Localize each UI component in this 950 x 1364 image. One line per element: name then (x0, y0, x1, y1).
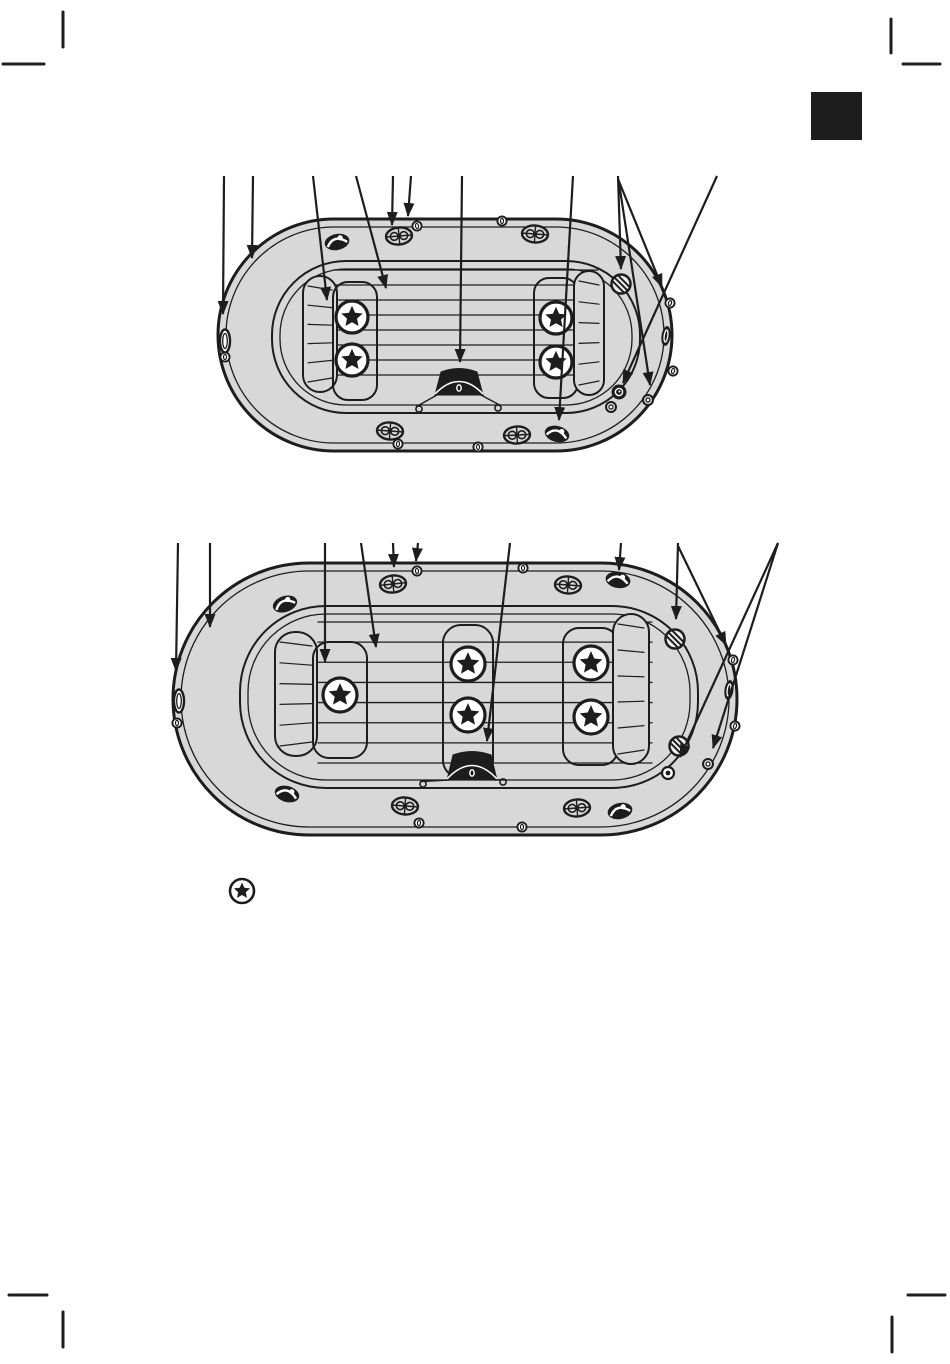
bench-outline (574, 271, 604, 395)
inflatable-bench (303, 276, 337, 392)
air-valve-icon (612, 385, 627, 400)
screw-hatch-icon (612, 275, 631, 294)
boat-diagram-two-bench (218, 176, 717, 452)
grommet-ring (220, 352, 229, 361)
inflatable-bench (574, 271, 604, 395)
ring-hole (609, 405, 613, 409)
rope-ring-icon (643, 395, 653, 405)
footnote-star-icon (230, 879, 254, 903)
rope-grommet-icon (412, 221, 423, 232)
callout-arrow (223, 176, 224, 314)
grommet-ring (518, 563, 527, 572)
drain-plug-icon (662, 767, 674, 779)
oar-lock-icon (554, 576, 581, 595)
callout-arrow (408, 176, 411, 216)
rope-grommet-icon (517, 822, 526, 831)
drain-ring-plug (666, 771, 671, 776)
oar-lock-slot (517, 427, 518, 443)
star-valve-marker (323, 678, 357, 712)
star-valve-marker (451, 698, 485, 732)
callout-arrow (252, 176, 253, 258)
oar-lock-icon (385, 226, 412, 245)
star-valve-marker (574, 646, 608, 680)
grommet-ring (517, 822, 526, 831)
screw-hatch-icon (666, 630, 685, 649)
grommet-ring (412, 566, 422, 576)
chapter-tab-marker (811, 92, 862, 140)
oar-lock-icon (521, 225, 548, 244)
star-valve-marker (336, 344, 368, 376)
rope-grommet-icon (172, 718, 181, 727)
bench-outline (303, 276, 337, 392)
rope-grommet-icon (497, 216, 506, 225)
bench-hatch-line (308, 324, 332, 325)
ring-hole (706, 762, 710, 766)
inflatable-bench (275, 632, 317, 756)
valve-dot (619, 391, 621, 393)
bench-hatch-line (579, 323, 599, 324)
rope-grommet-icon (414, 818, 424, 828)
bow-rope-cap-icon (174, 690, 184, 713)
rope-grommet-icon (393, 439, 403, 449)
star-valve-marker (336, 301, 368, 333)
star-valve-marker (451, 647, 485, 681)
oar-lock-icon (376, 422, 403, 441)
bench-hatch-line (579, 343, 599, 344)
oar-lock-icon (504, 426, 531, 444)
star-valve-marker (574, 700, 608, 734)
bench-hatch-line (618, 676, 644, 677)
bow-rope-cap-icon (220, 330, 230, 353)
bench-outline (275, 632, 317, 756)
callout-arrow (416, 543, 418, 561)
callout-arrow (176, 543, 178, 671)
bench-hatch-line (618, 701, 644, 702)
gear-pouch-eyelet (457, 385, 461, 391)
grommet-ring (393, 439, 403, 449)
rope-grommet-icon (473, 442, 482, 451)
rope-grommet-icon (518, 563, 527, 572)
ring-hole (646, 398, 650, 402)
star-valve-marker (540, 346, 572, 378)
grommet-ring (473, 442, 482, 451)
hull-outline (173, 563, 737, 835)
callout-arrow (393, 543, 394, 567)
diagram-scene (0, 0, 950, 1364)
rope-grommet-icon (412, 566, 422, 576)
grommet-ring (172, 718, 181, 727)
grommet-ring (667, 365, 678, 376)
bench-outline (613, 614, 649, 764)
manual-page (0, 0, 950, 1364)
bench-hatch-line (280, 704, 312, 705)
oar-lock-icon (563, 799, 590, 818)
rope-ring-icon (703, 759, 713, 769)
star-valve-marker (540, 302, 572, 334)
bench-hatch-line (308, 343, 332, 344)
grommet-ring (414, 818, 424, 828)
rope-grommet-icon (220, 352, 229, 361)
callout-arrow (392, 176, 393, 225)
rope-ring-icon (606, 402, 616, 412)
inflatable-bench (613, 614, 649, 764)
rope-grommet-icon (667, 365, 678, 376)
gear-pouch-eyelet (470, 770, 474, 776)
boat-diagram-three-bench (172, 543, 778, 835)
grommet-ring (497, 216, 506, 225)
grommet-ring (412, 221, 423, 232)
bench-hatch-line (280, 684, 312, 685)
oar-lock-icon (391, 797, 418, 816)
